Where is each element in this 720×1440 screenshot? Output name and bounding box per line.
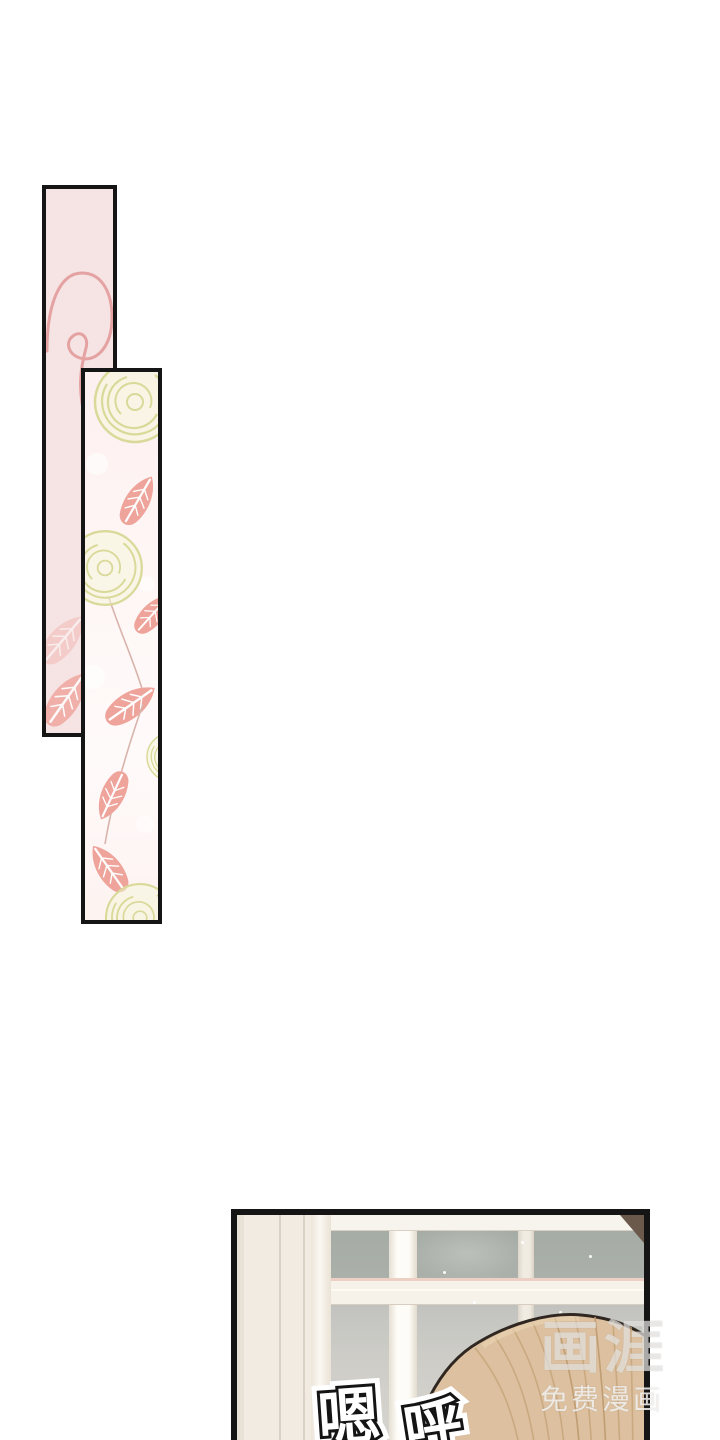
sfx-char-fill: 呼 — [400, 1395, 466, 1440]
comic-page[interactable]: 嗯 嗯 嗯 呼 呼 呼 画涯 免费漫画 — [0, 0, 720, 1440]
sfx-char-fill: 嗯 — [316, 1386, 382, 1440]
panel-floral-right — [81, 368, 162, 924]
floral-pattern-art — [85, 372, 158, 920]
